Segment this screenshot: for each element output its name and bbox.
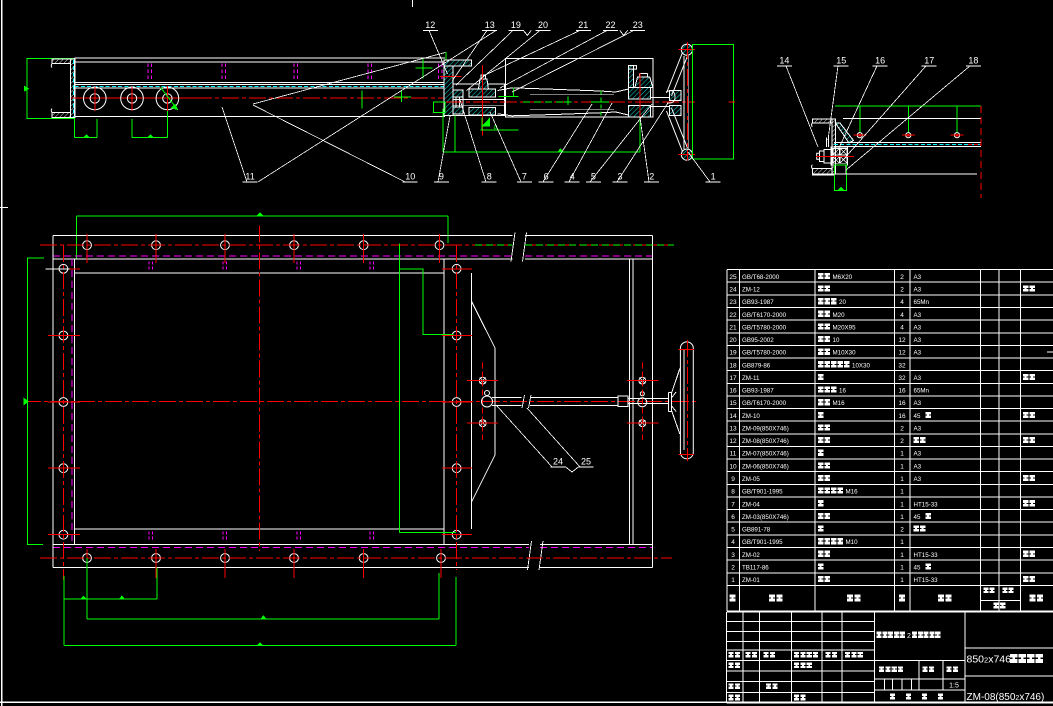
svg-text:HT15-33: HT15-33 [914,552,939,559]
svg-text:1: 1 [900,564,904,571]
svg-text:12: 12 [898,350,906,357]
svg-text:1: 1 [711,171,716,181]
svg-text:24: 24 [729,287,737,294]
svg-text:GB93-1987: GB93-1987 [742,388,774,395]
svg-text:2: 2 [900,426,904,433]
svg-text:23: 23 [729,299,737,306]
svg-text:GB/T6170-2000: GB/T6170-2000 [742,312,787,319]
svg-text:19: 19 [511,20,521,30]
svg-text:1: 1 [900,539,904,546]
svg-text:ZM-12: ZM-12 [742,287,760,294]
svg-text:A3: A3 [914,375,922,382]
svg-text:12: 12 [425,20,435,30]
svg-text:22: 22 [605,20,615,30]
svg-text:ZM-02: ZM-02 [742,552,760,559]
svg-text:2: 2 [649,171,654,181]
svg-text:45: 45 [914,514,921,521]
svg-text:M16: M16 [833,400,846,407]
svg-text:18: 18 [729,362,737,369]
svg-text:1: 1 [900,514,904,521]
svg-text:A3: A3 [914,324,922,331]
svg-text:GB/T901-1995: GB/T901-1995 [742,539,783,546]
svg-text:HT15-33: HT15-33 [914,577,939,584]
svg-text:14: 14 [779,55,789,65]
svg-text:17: 17 [729,375,737,382]
svg-text:2: 2 [731,564,735,571]
svg-text:32: 32 [898,375,906,382]
svg-text:9: 9 [731,476,735,483]
svg-text:3: 3 [731,552,735,559]
svg-text:18: 18 [968,55,978,65]
svg-text:7: 7 [522,171,527,181]
svg-text:11: 11 [730,451,737,458]
svg-text:A3: A3 [914,463,922,470]
svg-text:13: 13 [729,426,737,433]
svg-text:GB/T6170-2000: GB/T6170-2000 [742,400,787,407]
svg-text:12: 12 [729,438,737,445]
svg-text:10: 10 [833,337,840,344]
svg-text:GB/T68-2000: GB/T68-2000 [742,274,780,281]
svg-text:ZM-03(850X746): ZM-03(850X746) [742,514,789,521]
svg-text:16: 16 [898,388,906,395]
svg-text:25: 25 [729,274,737,281]
svg-text:1: 1 [731,577,735,584]
svg-text:1: 1 [900,463,904,470]
svg-text:HT15-33: HT15-33 [914,501,939,508]
svg-text:8: 8 [487,171,492,181]
svg-text:4: 4 [900,312,904,319]
svg-text:45: 45 [914,413,921,420]
svg-text:M10: M10 [846,539,859,546]
svg-text:GB/T5780-2000: GB/T5780-2000 [742,350,787,357]
svg-text:ZM-04: ZM-04 [742,501,760,508]
svg-text:2: 2 [907,633,911,640]
svg-text:ZM-08(850X746): ZM-08(850X746) [742,438,789,445]
svg-text:65Mn: 65Mn [914,388,930,395]
svg-text:24: 24 [553,456,563,466]
svg-text:M20: M20 [833,312,846,319]
svg-text:15: 15 [729,400,737,407]
svg-text:4: 4 [900,299,904,306]
svg-text:1:5: 1:5 [949,683,959,690]
svg-text:12: 12 [898,337,906,344]
svg-text:GB879-86: GB879-86 [742,362,771,369]
svg-text:1: 1 [900,577,904,584]
svg-text:ZM-11: ZM-11 [742,375,760,382]
svg-text:4: 4 [900,324,904,331]
svg-text:6: 6 [731,514,735,521]
svg-text:16: 16 [839,388,846,395]
svg-text:11: 11 [245,171,254,181]
svg-text:15: 15 [836,55,846,65]
svg-text:ZM-09(850X746): ZM-09(850X746) [742,426,789,433]
svg-text:GB95-2002: GB95-2002 [742,337,774,344]
svg-text:2: 2 [900,438,904,445]
svg-text:25: 25 [581,456,591,466]
svg-text:A3: A3 [914,451,922,458]
svg-text:A3: A3 [914,400,922,407]
svg-text:A3: A3 [914,274,922,281]
svg-text:14: 14 [729,413,737,420]
svg-text:2: 2 [900,274,904,281]
svg-text:A3: A3 [914,350,922,357]
svg-text:13: 13 [485,20,495,30]
svg-text:1: 1 [900,476,904,483]
svg-text:GB93-1987: GB93-1987 [742,299,774,306]
svg-text:22: 22 [729,312,737,319]
svg-text:M10X30: M10X30 [833,350,857,357]
svg-text:GB891-78: GB891-78 [742,527,771,534]
svg-text:8502x746: 8502x746 [967,654,1012,666]
svg-text:20: 20 [729,337,737,344]
svg-text:65Mn: 65Mn [914,299,930,306]
svg-text:21: 21 [729,324,737,331]
svg-text:10: 10 [405,171,415,181]
svg-text:16: 16 [729,388,737,395]
svg-text:8: 8 [731,489,735,496]
svg-text:ZM-08(8502x746): ZM-08(8502x746) [967,692,1045,703]
svg-text:23: 23 [633,20,643,30]
svg-text:16: 16 [898,413,906,420]
svg-text:M6X20: M6X20 [833,274,853,281]
svg-text:1: 1 [900,489,904,496]
svg-text:M20X95: M20X95 [833,324,857,331]
svg-text:32: 32 [898,362,906,369]
svg-text:17: 17 [924,55,934,65]
svg-text:ZM-05: ZM-05 [742,476,760,483]
svg-text:GB/T5780-2000: GB/T5780-2000 [742,324,787,331]
svg-text:ZM-06(850X746): ZM-06(850X746) [742,463,789,470]
svg-text:ZM-07(850X746): ZM-07(850X746) [742,451,789,458]
svg-text:ZM-10: ZM-10 [742,413,760,420]
svg-text:19: 19 [729,350,737,357]
svg-text:ZM-01: ZM-01 [742,577,760,584]
svg-text:1: 1 [900,501,904,508]
svg-text:GB/T901-1995: GB/T901-1995 [742,489,783,496]
svg-text:A3: A3 [914,426,922,433]
svg-text:M16: M16 [846,489,859,496]
svg-text:2: 2 [900,527,904,534]
svg-text:5: 5 [731,527,735,534]
svg-text:10: 10 [729,463,737,470]
svg-text:16: 16 [898,400,906,407]
svg-text:A3: A3 [914,337,922,344]
svg-text:A3: A3 [914,287,922,294]
svg-text:16: 16 [875,55,885,65]
svg-text:1: 1 [900,451,904,458]
svg-text:45: 45 [914,564,921,571]
svg-text:20: 20 [839,299,846,306]
svg-text:10X30: 10X30 [852,362,870,369]
svg-text:20: 20 [538,20,548,30]
svg-text:TB117-86: TB117-86 [742,564,769,571]
svg-text:7: 7 [731,501,735,508]
svg-text:21: 21 [578,20,588,30]
svg-text:A3: A3 [914,476,922,483]
svg-text:2: 2 [900,287,904,294]
svg-text:1: 1 [900,552,904,559]
svg-text:4: 4 [731,539,735,546]
svg-text:A3: A3 [914,312,922,319]
